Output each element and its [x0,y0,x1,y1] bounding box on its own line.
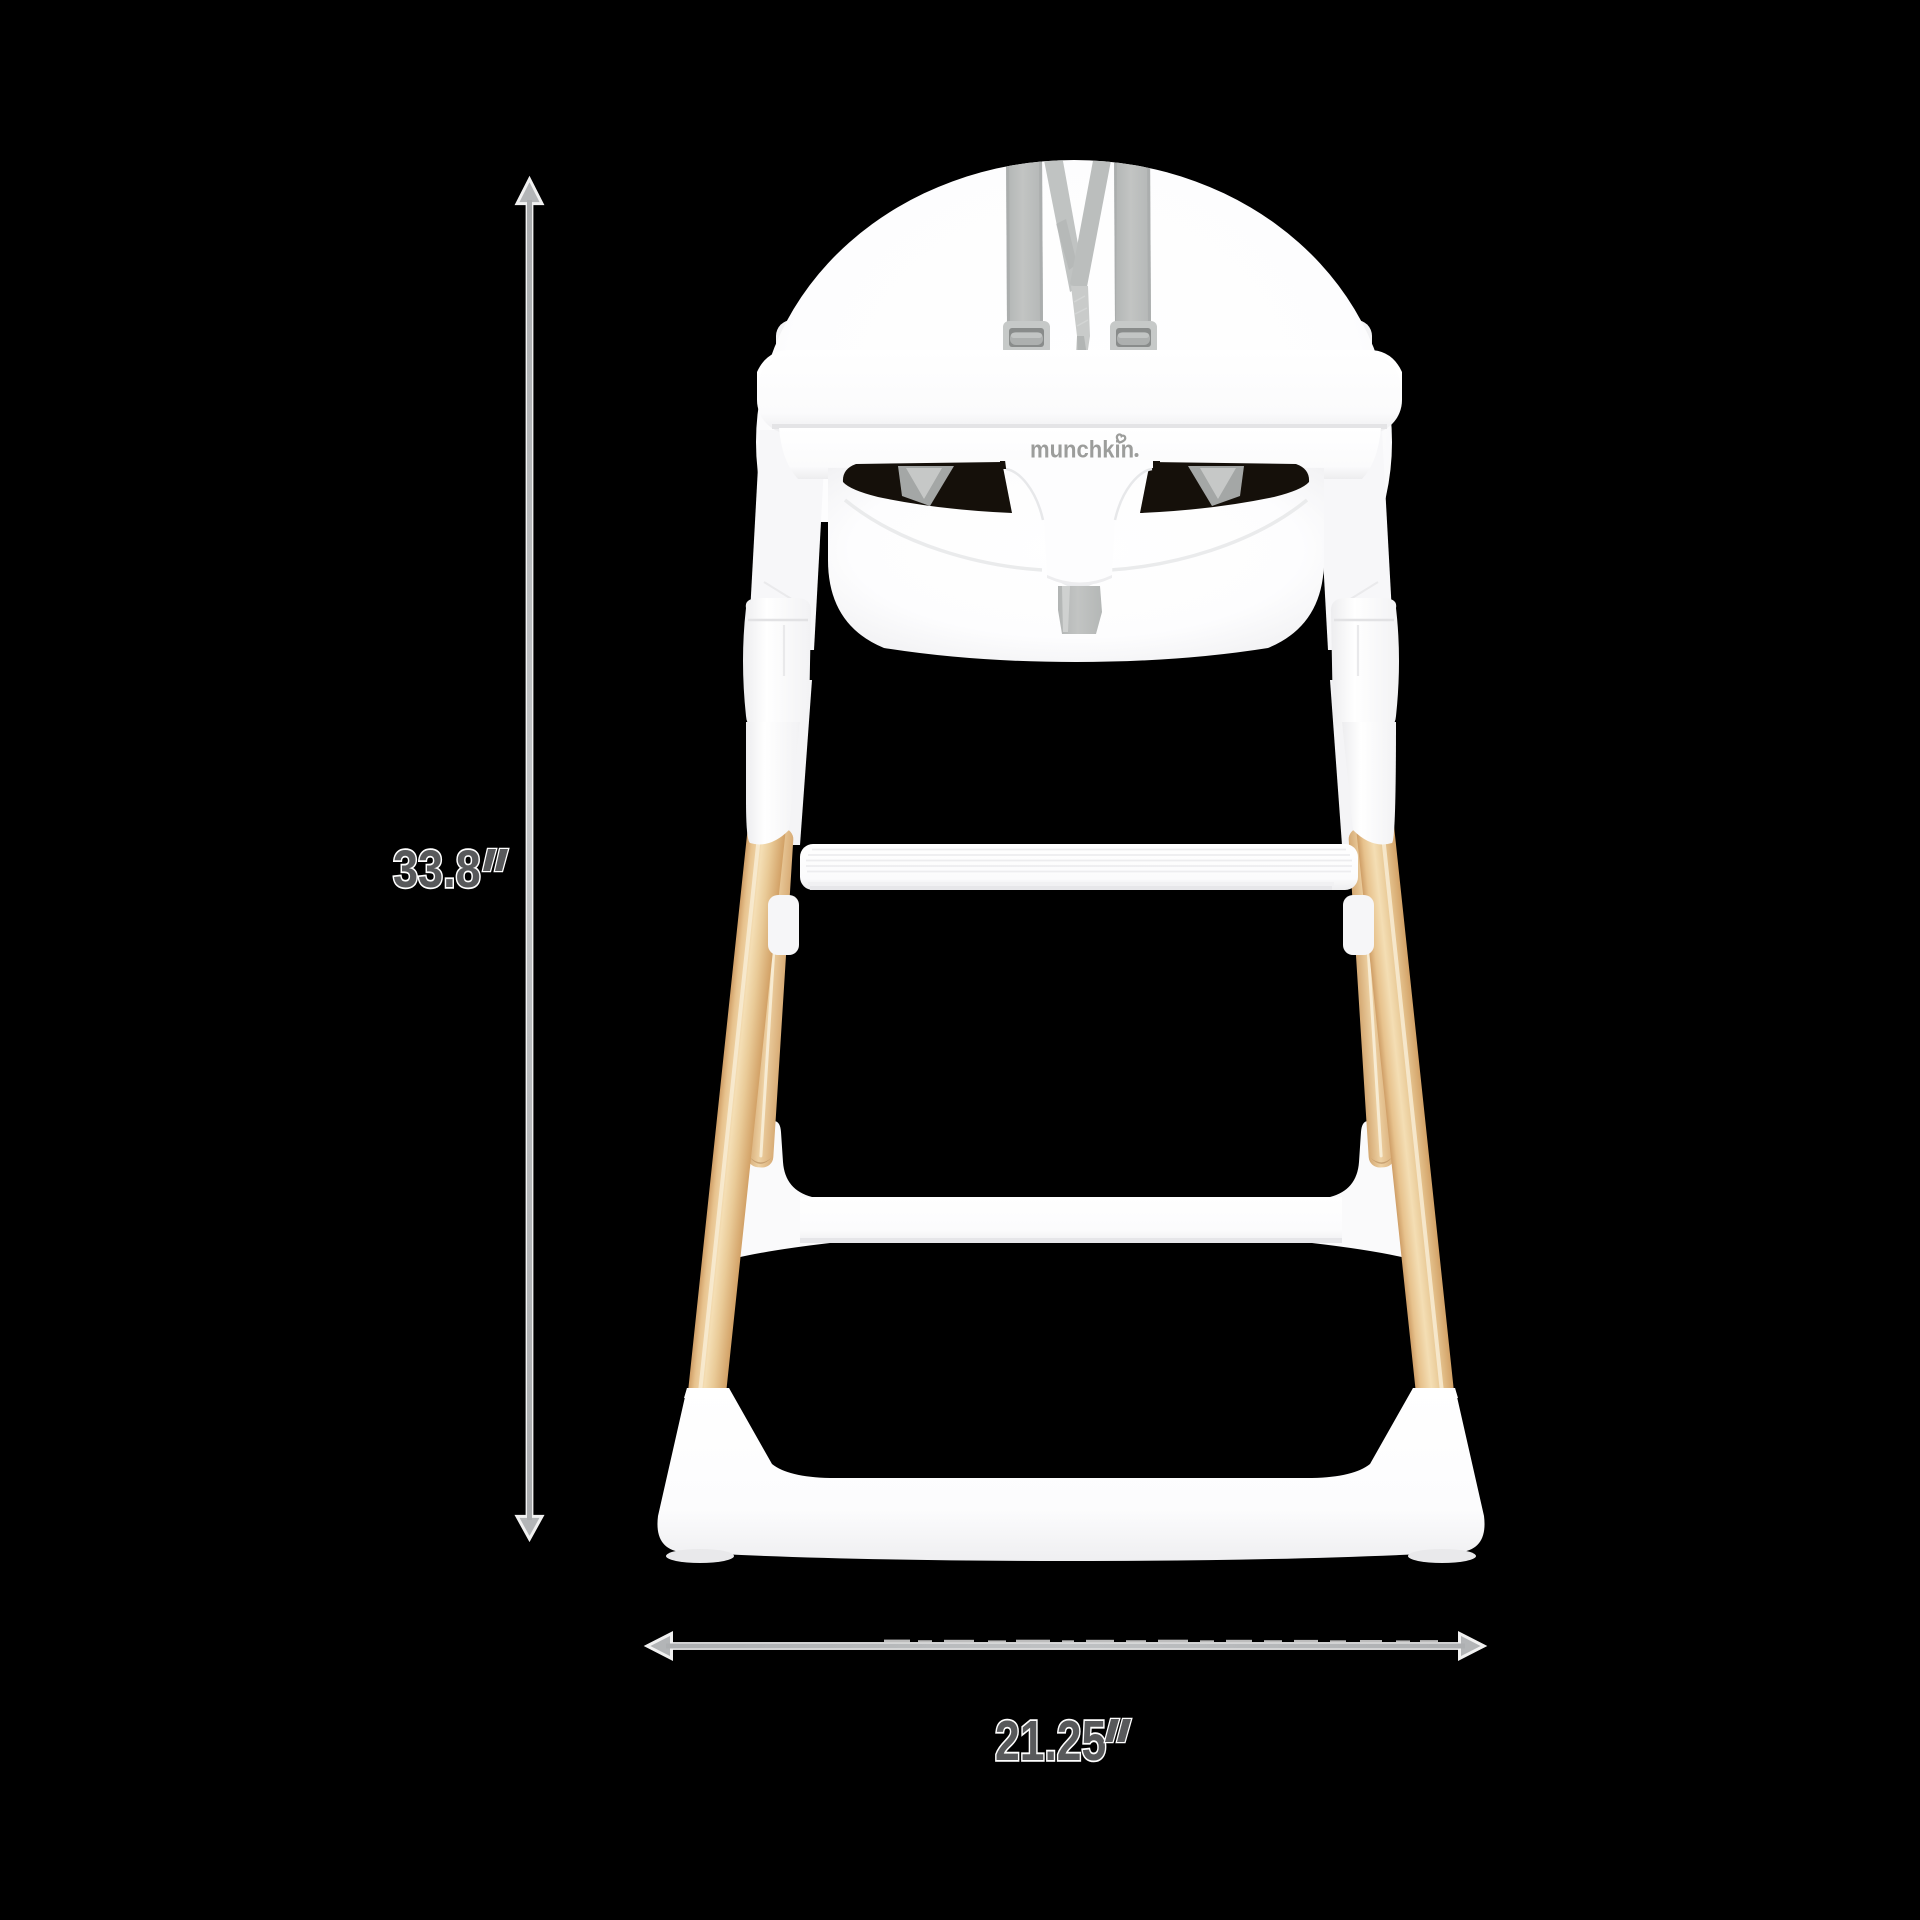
svg-text:21.25: 21.25 [995,1709,1106,1773]
svg-text:33.8: 33.8 [393,840,481,899]
